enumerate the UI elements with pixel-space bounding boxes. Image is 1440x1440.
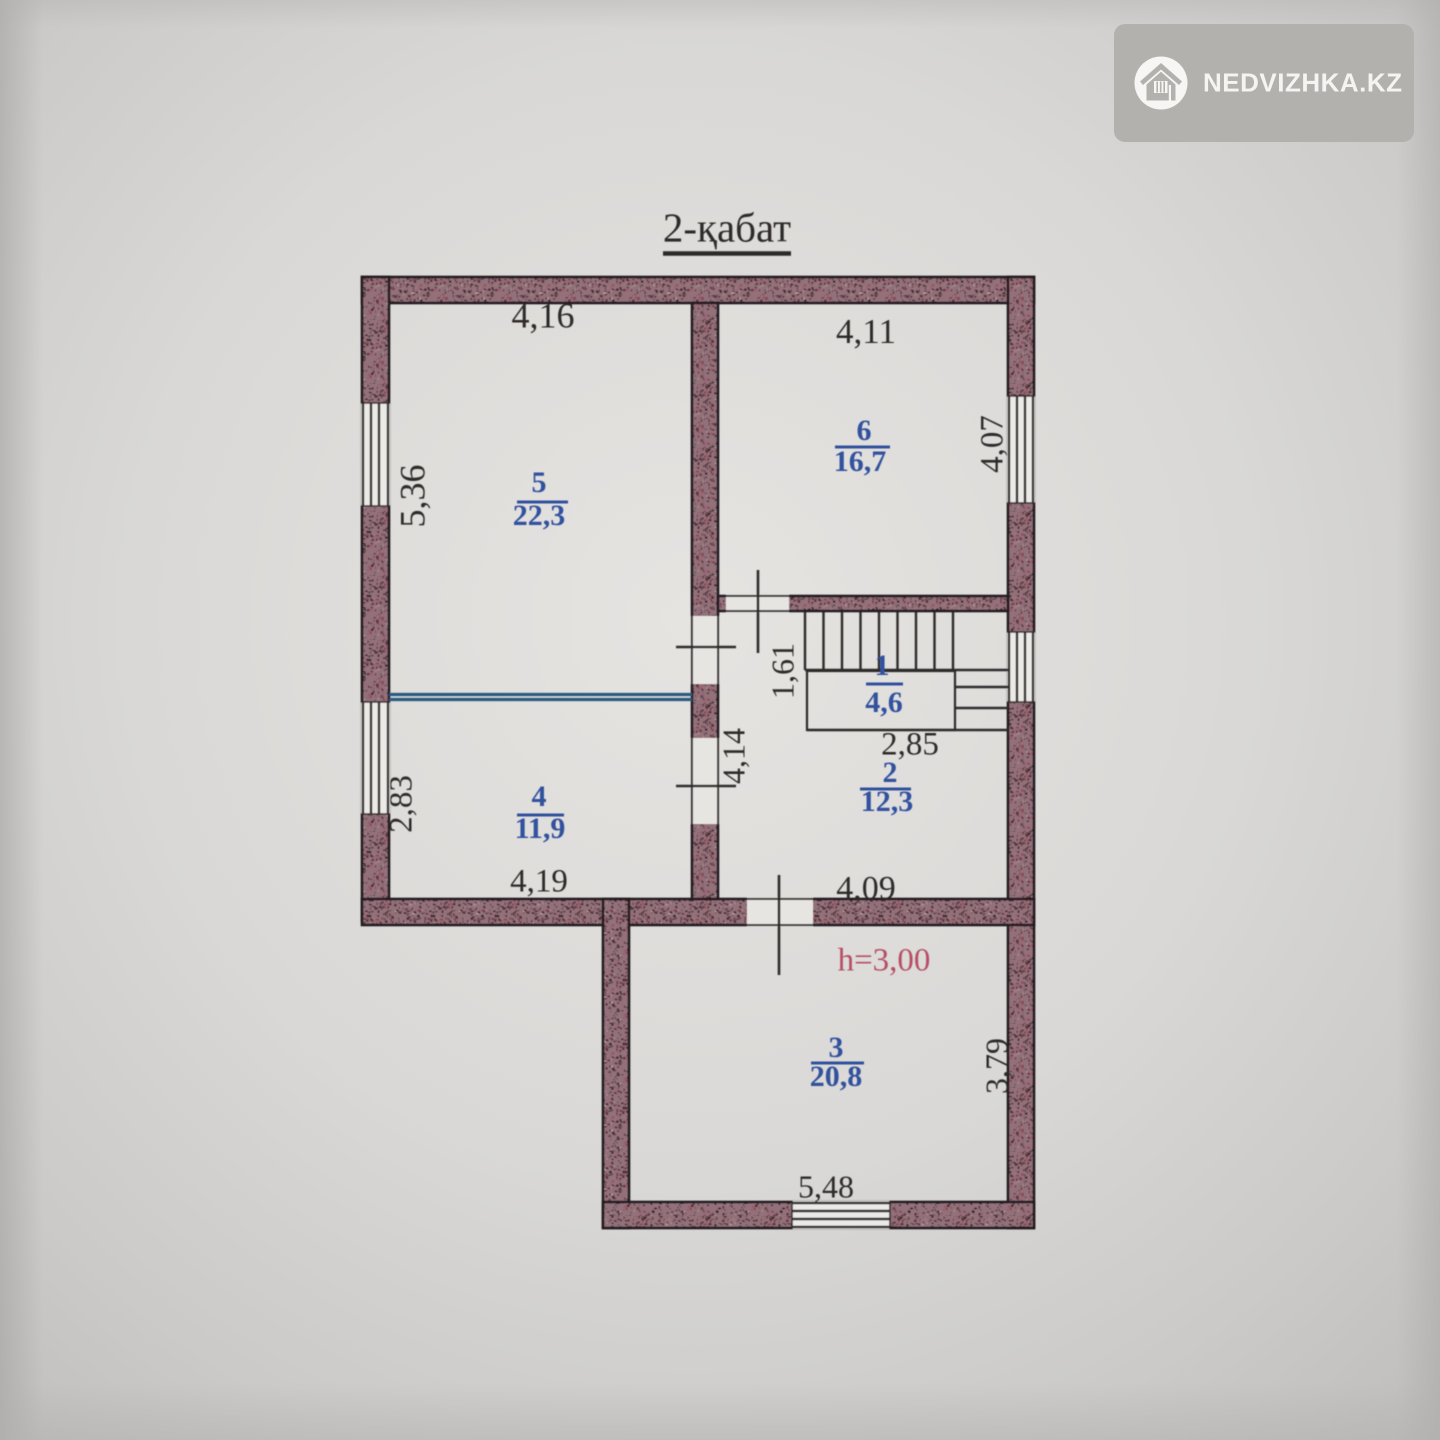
svg-text:20,8: 20,8 xyxy=(810,1060,863,1093)
svg-text:4: 4 xyxy=(532,780,547,813)
svg-text:12,3: 12,3 xyxy=(861,785,914,818)
svg-text:11,9: 11,9 xyxy=(515,812,566,845)
svg-text:4,09: 4,09 xyxy=(836,870,896,907)
svg-text:4,6: 4,6 xyxy=(865,686,903,719)
svg-text:1,61: 1,61 xyxy=(764,643,800,699)
svg-text:6: 6 xyxy=(857,414,872,447)
svg-text:16,7: 16,7 xyxy=(834,445,887,478)
svg-text:2-қабат: 2-қабат xyxy=(663,204,791,250)
svg-text:3,79: 3,79 xyxy=(978,1038,1014,1094)
svg-text:4,19: 4,19 xyxy=(510,864,568,900)
svg-text:5: 5 xyxy=(532,466,547,499)
svg-text:22,3: 22,3 xyxy=(513,499,566,532)
svg-text:5,36: 5,36 xyxy=(392,465,432,528)
svg-text:2,83: 2,83 xyxy=(384,775,420,833)
svg-text:5,48: 5,48 xyxy=(798,1168,854,1204)
svg-text:4,07: 4,07 xyxy=(975,415,1011,473)
svg-text:NEDVIZHKA.KZ: NEDVIZHKA.KZ xyxy=(1203,67,1403,97)
svg-text:h=3,00: h=3,00 xyxy=(838,943,931,979)
svg-text:4,14: 4,14 xyxy=(715,728,751,784)
svg-text:4,16: 4,16 xyxy=(512,295,575,335)
svg-text:4,11: 4,11 xyxy=(836,312,896,351)
svg-text:1: 1 xyxy=(875,649,890,682)
